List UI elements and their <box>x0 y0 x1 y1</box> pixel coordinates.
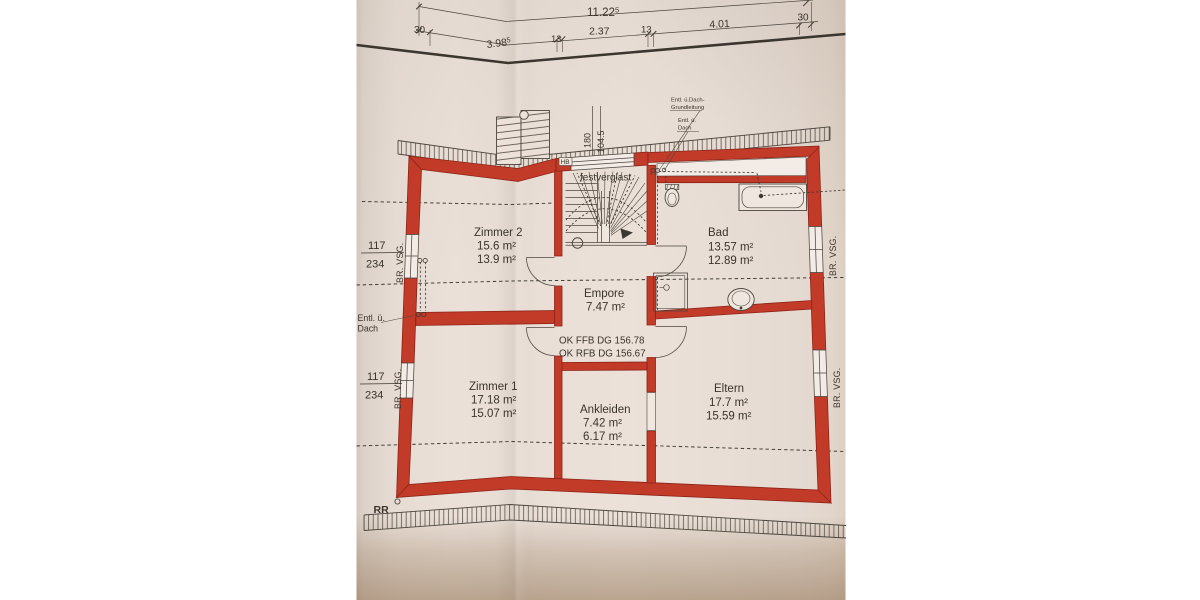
svg-text:BR. VSG.: BR. VSG. <box>828 235 838 276</box>
svg-text:festverglast: festverglast <box>580 173 631 184</box>
svg-text:OK FFB DG 156.78: OK FFB DG 156.78 <box>559 336 645 347</box>
svg-text:HB: HB <box>561 159 570 166</box>
svg-text:13: 13 <box>551 34 562 45</box>
svg-text:Zimmer 2: Zimmer 2 <box>474 227 523 239</box>
svg-text:17.7 m²: 17.7 m² <box>709 397 748 409</box>
svg-text:117: 117 <box>367 371 385 383</box>
svg-text:Ankleiden: Ankleiden <box>580 404 631 416</box>
svg-text:117: 117 <box>368 240 386 252</box>
svg-text:30: 30 <box>414 25 426 36</box>
svg-text:17.18 m²: 17.18 m² <box>471 395 517 407</box>
svg-text:Dach: Dach <box>358 324 379 334</box>
svg-text:7.47 m²: 7.47 m² <box>586 302 625 314</box>
svg-text:Eltern: Eltern <box>714 383 744 395</box>
svg-text:Grundleitung: Grundleitung <box>671 105 704 111</box>
svg-text:234: 234 <box>365 390 383 402</box>
svg-text:7.42 m²: 7.42 m² <box>583 418 622 430</box>
svg-text:Zimmer 1: Zimmer 1 <box>469 381 518 393</box>
svg-text:OK RFB DG 156.67: OK RFB DG 156.67 <box>559 349 646 360</box>
svg-text:BR. VSG.: BR. VSG. <box>395 242 405 283</box>
svg-text:15.07 m²: 15.07 m² <box>471 408 517 420</box>
svg-text:12.89 m²: 12.89 m² <box>708 255 754 267</box>
svg-text:Entl. ü.Dach-: Entl. ü.Dach- <box>671 98 705 104</box>
svg-text:180: 180 <box>583 133 593 148</box>
svg-text:13: 13 <box>641 25 652 36</box>
svg-text:BR. VSG.: BR. VSG. <box>393 368 403 409</box>
svg-text:Entl. ü.: Entl. ü. <box>678 118 696 124</box>
svg-text:4.01: 4.01 <box>709 18 730 31</box>
svg-text:Empore: Empore <box>584 288 624 300</box>
svg-text:11.225: 11.225 <box>587 6 619 20</box>
svg-text:13.9 m²: 13.9 m² <box>477 254 516 266</box>
svg-text:15.59 m²: 15.59 m² <box>706 411 752 423</box>
svg-text:BR. VSG.: BR. VSG. <box>832 367 842 408</box>
svg-text:Dach: Dach <box>678 125 692 131</box>
svg-text:104.5: 104.5 <box>596 130 606 153</box>
svg-text:30: 30 <box>798 13 810 24</box>
svg-text:234: 234 <box>366 259 384 271</box>
svg-text:6.17 m²: 6.17 m² <box>583 431 622 443</box>
svg-text:Entl. ü.: Entl. ü. <box>358 313 385 323</box>
svg-text:15.6 m²: 15.6 m² <box>477 241 516 253</box>
svg-text:Bad: Bad <box>708 227 728 239</box>
svg-text:2.37: 2.37 <box>589 26 610 38</box>
svg-text:13.57 m²: 13.57 m² <box>708 242 754 254</box>
